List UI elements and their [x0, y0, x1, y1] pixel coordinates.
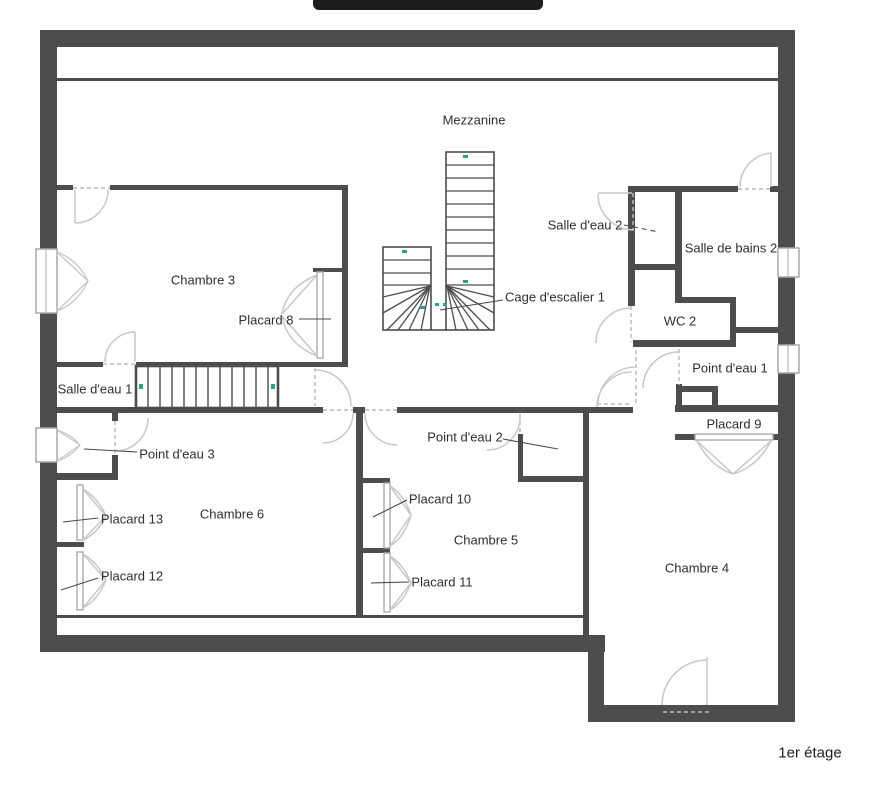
mezzanine-edge-line — [57, 78, 778, 81]
room-label-salle-eau-2: Salle d'eau 2 — [548, 219, 623, 232]
wall-right — [778, 30, 795, 722]
window-casement-arcs — [57, 252, 88, 461]
corridor-right-door — [597, 372, 632, 407]
room-label-chambre-4: Chambre 4 — [665, 562, 729, 575]
divider-ch5-ch6 — [356, 413, 363, 618]
placard13-sliding-door — [77, 485, 83, 540]
room-label-salle-de-bains-2: Salle de bains 2 — [685, 242, 778, 255]
room-label-mezzanine: Mezzanine — [443, 114, 506, 127]
placard10-swings — [390, 486, 411, 546]
divider-ch4-ch5 — [583, 407, 589, 652]
sdb2-door — [740, 153, 771, 187]
room-label-point-eau-3: Point d'eau 3 — [139, 448, 215, 461]
corridor-wall-c — [397, 407, 633, 413]
room-label-point-eau-1: Point d'eau 1 — [692, 362, 768, 375]
placard10-top-stub — [356, 478, 390, 483]
room-label-placard-11: Placard 11 — [411, 576, 472, 589]
stair-flight-salle-eau1 — [136, 366, 278, 408]
sde2-sdb2-divider — [675, 186, 682, 298]
floor-plan-page: Mezzanine Chambre 3 Placard 8 Salle d'ea… — [0, 0, 880, 785]
room-label-placard-12: Placard 12 — [101, 570, 163, 583]
room-label-chambre-5: Chambre 5 — [454, 534, 518, 547]
room-label-placard-10: Placard 10 — [409, 493, 471, 506]
room-label-placard-13: Placard 13 — [101, 513, 163, 526]
chambre3-top-wall-b — [110, 185, 348, 190]
door-swings — [75, 153, 771, 705]
leader-pde2 — [503, 439, 558, 449]
room-label-salle-eau-1: Salle d'eau 1 — [58, 383, 133, 396]
room-label-chambre-6: Chambre 6 — [200, 508, 264, 521]
corridor-wall-b — [353, 407, 365, 413]
wc2-right-wall — [730, 297, 736, 347]
room-label-wc-2: WC 2 — [664, 315, 697, 328]
sde2-bottom-wall — [628, 264, 682, 270]
wall-extension-bottom — [588, 705, 795, 722]
leader-placard11 — [371, 582, 409, 583]
placard9-stub-right — [773, 434, 778, 440]
pde2-wall-h — [518, 476, 588, 482]
sde2-top-wall-a — [628, 186, 738, 192]
placard10-sliding-door — [384, 483, 390, 548]
chambre3-bottom-wall-a — [57, 362, 103, 367]
wc2-top-wall — [675, 297, 736, 303]
chambre3-top-door — [75, 190, 108, 223]
pde3-right-wall — [112, 455, 118, 475]
room-label-chambre-3: Chambre 3 — [171, 274, 235, 287]
wc2-door — [596, 308, 631, 343]
wall-top — [40, 30, 795, 47]
room-label-placard-9: Placard 9 — [707, 418, 762, 431]
pde3-bottom-wall — [57, 473, 118, 480]
chambre3-right-wall — [342, 185, 348, 367]
windows — [36, 248, 799, 462]
pde3-right-wall-stub — [112, 413, 118, 421]
wall-bottom-main — [40, 635, 605, 652]
placard9-swings — [697, 441, 771, 474]
chambre6-door — [323, 413, 353, 443]
wc2-bottom-wall — [633, 340, 736, 347]
placard9-sliding-door — [695, 434, 773, 440]
chambre5-door — [365, 413, 397, 445]
wc2-left-wall — [628, 270, 635, 306]
placard12-sliding-door — [77, 552, 83, 610]
room-label-placard-8: Placard 8 — [239, 314, 294, 327]
window-left-2 — [36, 428, 57, 462]
pde1-door — [643, 352, 679, 388]
placard8-sliding-door — [317, 272, 323, 358]
room-label-point-eau-2: Point d'eau 2 — [427, 431, 503, 444]
sde2-left-wall — [628, 186, 635, 270]
placard9-stub-left — [675, 434, 695, 440]
chambre3-bottom-door — [105, 332, 135, 362]
room-label-cage-escalier-1: Cage d'escalier 1 — [505, 291, 605, 304]
bottom-inner-line — [57, 615, 583, 618]
sdb2-bottom-wall — [736, 327, 778, 333]
outer-walls — [40, 30, 795, 722]
salle-eau1-door — [315, 370, 351, 406]
placard13-bottom-wall — [57, 542, 84, 547]
placard9-top-wall — [675, 405, 778, 412]
pde2-wall-v — [518, 434, 523, 480]
placard11-swings — [390, 556, 411, 610]
entry-door — [662, 657, 707, 705]
chambre3-top-wall-a — [57, 185, 73, 190]
wall-left — [40, 30, 57, 652]
placard10-bottom-stub — [356, 548, 390, 553]
floor-title: 1er étage — [778, 746, 841, 761]
leader-pde3 — [84, 449, 137, 452]
top-black-bar — [313, 0, 543, 10]
